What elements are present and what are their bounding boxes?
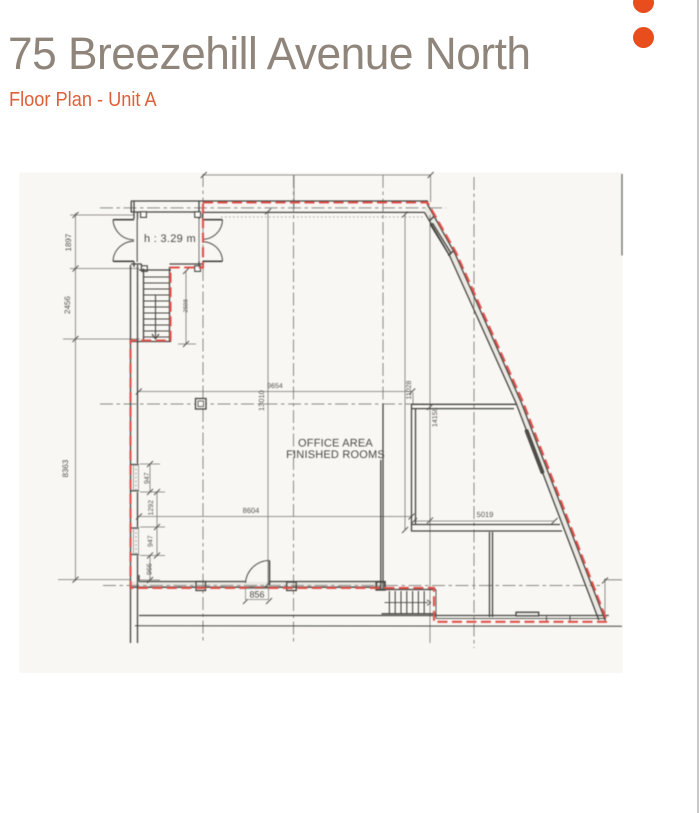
svg-text:1292: 1292 <box>148 500 155 516</box>
svg-text:8363: 8363 <box>61 459 70 477</box>
svg-text:1897: 1897 <box>64 233 73 251</box>
svg-text:11028: 11028 <box>406 380 413 399</box>
svg-text:13010: 13010 <box>257 390 266 411</box>
svg-text:9654: 9654 <box>267 383 283 390</box>
svg-text:h : 3.29 m: h : 3.29 m <box>144 233 196 245</box>
svg-text:OFFICE AREA: OFFICE AREA <box>298 438 373 450</box>
svg-text:5019: 5019 <box>477 510 494 519</box>
svg-text:14158: 14158 <box>432 407 439 427</box>
svg-text:966: 966 <box>147 563 154 575</box>
svg-text:2598: 2598 <box>183 298 190 312</box>
svg-text:856: 856 <box>249 590 264 600</box>
svg-text:2456: 2456 <box>63 296 72 314</box>
svg-text:8604: 8604 <box>243 506 260 515</box>
svg-text:947: 947 <box>144 472 151 484</box>
svg-text:947: 947 <box>148 535 155 547</box>
svg-text:FINISHED ROOMS: FINISHED ROOMS <box>286 449 385 461</box>
